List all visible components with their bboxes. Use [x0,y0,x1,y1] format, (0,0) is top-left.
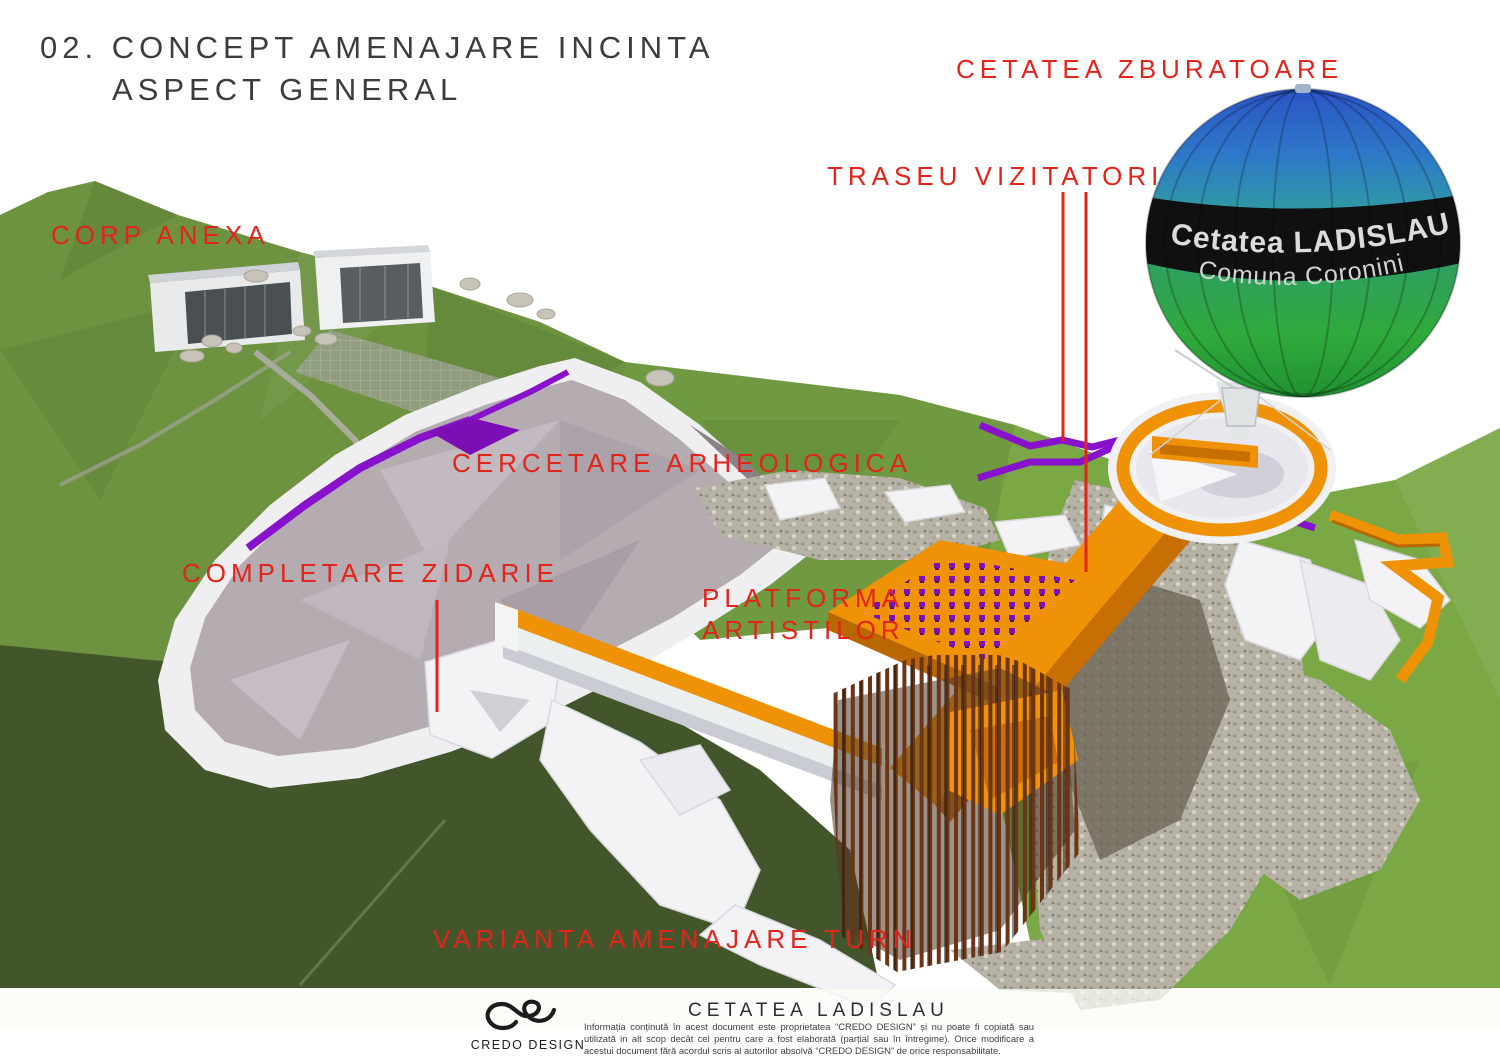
infinity-logo-icon [488,1002,554,1028]
board-title-line2: ASPECT GENERAL [112,72,462,108]
label-cetatea-zburatoare: CETATEA ZBURATOARE [956,54,1343,85]
label-traseu-vizitatori: TRASEU VIZITATORI [827,161,1163,192]
footer-project-title: CETATEA LADISLAU [688,1000,949,1022]
label-varianta-amenajare-turn: VARIANTA AMENAJARE TURN [433,924,916,955]
presentation-board: Cetatea LADISLAU Comuna Coronini 02. CON… [0,0,1500,1061]
credo-design-logo [476,996,580,1040]
balloon-basket [1222,388,1260,426]
site-plan-rendering: Cetatea LADISLAU Comuna Coronini [0,0,1500,1061]
label-completare-zidarie: COMPLETARE ZIDARIE [182,558,559,589]
brand-name: CREDO DESIGN [468,1038,588,1052]
label-platforma-line2: ARTISTILOR [702,615,905,646]
round-tower [1108,392,1336,544]
board-title-line1: 02. CONCEPT AMENAJARE INCINTA [40,30,714,66]
label-corp-anexa: CORP ANEXA [51,220,270,251]
footer-disclaimer: Informația conținută în acest document e… [584,1021,1034,1057]
label-platforma-line1: PLATFORMA [702,583,904,614]
label-cercetare-arheologica: CERCETARE ARHEOLOGICA [452,448,912,479]
